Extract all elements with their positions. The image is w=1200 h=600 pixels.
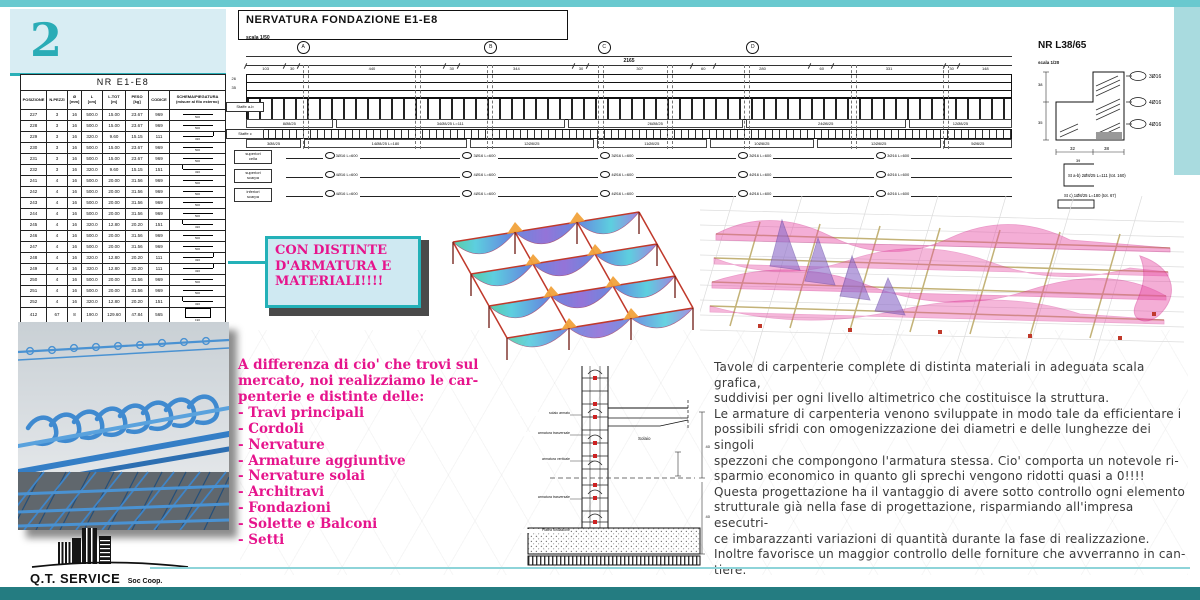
feature-item: - Nervature solai	[238, 469, 494, 485]
column-header: SCHEMA/PIEGATURA (misure al filo esterno…	[170, 91, 226, 110]
callout-box: CON DISTINTE D'ARMATURA E MATERIALI!!!!	[265, 236, 421, 308]
feature-item: - Nervature	[238, 438, 494, 454]
column-header: PESO [kg]	[126, 91, 149, 110]
callout-connector	[228, 261, 267, 264]
table-row: 228316500.015.0023.67969500	[21, 121, 226, 132]
table-row: 241416500.020.0031.56969500	[21, 176, 226, 187]
feature-item: - Travi principali	[238, 406, 494, 422]
page-number: 2	[30, 9, 226, 71]
schema-glyph: 320	[170, 165, 226, 176]
schema-glyph: 500	[170, 198, 226, 209]
footer-divider	[150, 567, 1190, 569]
bar-row-label: superiori cella	[234, 150, 272, 164]
svg-text:4Ø16: 4Ø16	[1149, 100, 1161, 106]
table-row: 249416320.012.8020.20111320	[21, 264, 226, 275]
slab-analysis-view	[700, 196, 1184, 366]
features-block: A differenza di cio' che trovi sul merca…	[238, 358, 494, 549]
bar-row-label: superiori scarpa	[234, 169, 272, 183]
table-row: 250416500.020.0031.56969500	[21, 275, 226, 286]
column-header: N.PEZZI	[47, 91, 68, 110]
detail-sketch: 3Ø16 4Ø16 4Ø16 32 38 38 35 39 St a-b) 2Ø…	[1038, 62, 1178, 212]
table-row: 247416500.020.0031.56969500	[21, 242, 226, 253]
schema-glyph: 500	[170, 286, 226, 297]
schema-glyph: 500	[170, 121, 226, 132]
svg-text:39: 39	[1076, 159, 1080, 163]
schema-glyph: 320	[170, 297, 226, 308]
table-row: 248416320.012.8020.20111320	[21, 253, 226, 264]
schema-glyph: 500	[170, 231, 226, 242]
svg-text:32: 32	[1070, 146, 1076, 151]
schema-glyph: 190	[170, 308, 226, 323]
feature-item: - Armature aggiuntive	[238, 454, 494, 470]
bar-chip: 3Ø16 L=600	[736, 152, 773, 159]
feature-item: - Cordoli	[238, 422, 494, 438]
column-header: L.TOT [m]	[103, 91, 126, 110]
schema-glyph: 500	[170, 209, 226, 220]
tie-markers	[593, 376, 597, 524]
wall-section-drawing: solaio armatoarmatura trasversalearmatur…	[520, 360, 710, 572]
body-text: Tavole di carpenterie complete di distin…	[714, 360, 1188, 578]
bar-chip: 4Ø16 L=600	[598, 171, 635, 178]
rebar-photo	[18, 322, 229, 530]
svg-text:St a-b) 2Ø8/25 L=111 (tot. 16: St a-b) 2Ø8/25 L=111 (tot. 160)	[1068, 173, 1126, 178]
schema-glyph: 320	[170, 264, 226, 275]
column-header: POSIZIONE	[21, 91, 47, 110]
section-dim: 40	[706, 514, 710, 519]
slab	[608, 400, 688, 430]
feature-item: - Setti	[238, 533, 494, 549]
section-label: Platea fondazione	[520, 529, 570, 533]
svg-text:3Ø16: 3Ø16	[1149, 74, 1161, 80]
schema-glyph: 320	[170, 132, 226, 143]
bar-row: superiori cella3Ø16 L=6003Ø16 L=6003Ø16 …	[246, 150, 1012, 166]
column-header: L [cm]	[82, 91, 103, 110]
bar-chip: 3Ø16 L=600	[460, 152, 497, 159]
bar-row-label: inferiori scarpa	[234, 188, 272, 202]
company-suffix: Soc Coop.	[128, 578, 163, 585]
feature-item: - Architravi	[238, 485, 494, 501]
table-row: 242416500.020.0031.56969500	[21, 187, 226, 198]
svg-text:35: 35	[1038, 120, 1043, 125]
table-row: 243416500.020.0031.56969500	[21, 198, 226, 209]
bottom-accent-bar	[0, 587, 1200, 600]
slab-label: Solaio	[638, 436, 651, 441]
table-row: 412678190.0129.6047.84565190	[21, 308, 226, 323]
bar-chip: 3Ø16 L=600	[323, 152, 360, 159]
company-name: Q.T. SERVICE	[30, 571, 120, 586]
schema-glyph: 500	[170, 242, 226, 253]
bar-chip: 4Ø16 L=600	[460, 171, 497, 178]
bar-chip: 4Ø16 L=600	[323, 190, 360, 197]
feature-item: - Solette e Balconi	[238, 517, 494, 533]
bar-row: superiori scarpa4Ø16 L=6004Ø16 L=6004Ø16…	[246, 169, 1012, 185]
section-dim: 40	[706, 444, 710, 449]
schema-glyph: 500	[170, 154, 226, 165]
top-accent-bar	[0, 0, 1200, 7]
bar-chip: 3Ø16 L=600	[598, 152, 635, 159]
svg-text:4Ø16: 4Ø16	[1149, 122, 1161, 128]
column-header: CODICE	[149, 91, 170, 110]
table-row: 244416500.020.0031.56969500	[21, 209, 226, 220]
table-row: 245416320.012.8020.20151320	[21, 220, 226, 231]
table-title: NR E1-E8	[21, 75, 226, 91]
schema-glyph: 320	[170, 220, 226, 231]
svg-text:38: 38	[1104, 146, 1110, 151]
features-list: - Travi principali- Cordoli- Nervature- …	[238, 406, 494, 549]
feature-item: - Fondazioni	[238, 501, 494, 517]
schema-glyph: 500	[170, 176, 226, 187]
table-row: 246416500.020.0031.56969500	[21, 231, 226, 242]
section-label: armatura verticale	[520, 458, 570, 462]
detail-title: NR L38/65	[1038, 40, 1178, 51]
section-label: solaio armato	[520, 412, 570, 416]
svg-text:38: 38	[1038, 82, 1043, 87]
table-row: 231316500.015.0023.67969500	[21, 154, 226, 165]
table-row: 251416500.020.0031.56969500	[21, 286, 226, 297]
schema-glyph: 320	[170, 253, 226, 264]
schema-glyph: 500	[170, 110, 226, 121]
table-row: 227316500.015.0023.67969500	[21, 110, 226, 121]
table-header-row: POSIZIONEN.PEZZIØ [mm]L [cm]L.TOT [m]PES…	[21, 91, 226, 110]
schema-glyph: 500	[170, 143, 226, 154]
company-logo: Q.T. SERVICE Soc Coop.	[30, 526, 230, 584]
beam-drawing: NERVATURA FONDAZIONE E1-E8 scala 1/50 AB…	[238, 10, 1020, 208]
buildings-icon	[30, 526, 190, 570]
section-label: armatura trasversale	[520, 432, 570, 436]
bottom-mesh	[18, 472, 229, 530]
features-intro: A differenza di cio' che trovi sul merca…	[238, 358, 494, 406]
table-row: 230316500.015.0023.67969500	[21, 143, 226, 154]
bar-chip: 3Ø16 L=600	[874, 152, 911, 159]
bar-chip: 4Ø16 L=600	[874, 171, 911, 178]
schema-glyph: 500	[170, 275, 226, 286]
distinta-table: NR E1-E8 POSIZIONEN.PEZZIØ [mm]L [cm]L.T…	[20, 74, 226, 349]
drawing-scale: scala 1/50	[246, 35, 270, 41]
column-header: Ø [mm]	[68, 91, 82, 110]
drawing-title-box: NERVATURA FONDAZIONE E1-E8 scala 1/50	[238, 10, 568, 40]
beam-left-dims: 26 35	[224, 74, 236, 92]
bar-chip: 4Ø16 L=600	[736, 171, 773, 178]
logo-text-row: Q.T. SERVICE Soc Coop.	[30, 570, 162, 588]
table-row: 232316320.09.6015.15151320	[21, 165, 226, 176]
section-label: armatura trasversale	[520, 496, 570, 500]
section-detail: NR L38/65 scala 1/20 3Ø16 4Ø16 4Ø16	[1038, 40, 1178, 212]
schema-glyph: 500	[170, 187, 226, 198]
table-row: 252416320.012.8020.20151320	[21, 297, 226, 308]
frame-analysis-view	[435, 192, 703, 364]
bar-chip: 4Ø16 L=600	[323, 171, 360, 178]
wall-section-sketch	[520, 360, 710, 572]
drawing-title: NERVATURA FONDAZIONE E1-E8	[246, 14, 560, 26]
table-row: 229316320.09.6015.15111320	[21, 132, 226, 143]
page-number-panel: 2	[10, 9, 226, 76]
slide-page: 2 NR E1-E8 POSIZIONEN.PEZZIØ [mm]L [cm]L…	[0, 0, 1200, 600]
